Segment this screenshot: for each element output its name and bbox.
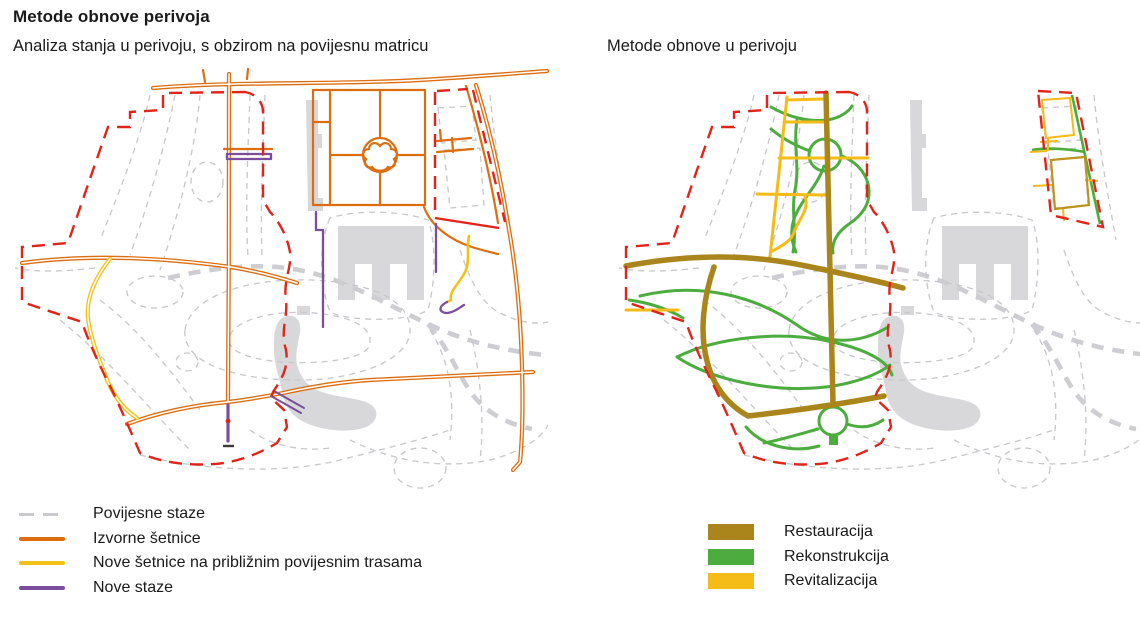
legend-item: Nove staze: [19, 576, 422, 601]
legend-swatch-new-walkways: [19, 561, 65, 565]
legend-swatch-reconstruction: [708, 549, 754, 565]
legend-item: Restauracija: [708, 520, 889, 545]
legend-swatch-new-paths: [19, 586, 65, 590]
legend-label: Povijesne staze: [93, 505, 205, 523]
legend-swatch-restoration: [708, 524, 754, 540]
legend-label: Izvorne šetnice: [93, 530, 201, 548]
legend-swatch-original-walkways: [19, 537, 65, 541]
legend-label: Rekonstrukcija: [784, 548, 889, 566]
legend-item: Povijesne staze: [19, 502, 422, 527]
legend-right: Restauracija Rekonstrukcija Revitalizaci…: [708, 520, 889, 594]
map-left-base: [15, 95, 548, 488]
legend-item: Revitalizacija: [708, 569, 889, 594]
legend-label: Restauracija: [784, 523, 873, 541]
legend-item: Nove šetnice na približnim povijesnim tr…: [19, 551, 422, 576]
legend-swatch-historic-paths: [19, 513, 65, 517]
legend-left: Povijesne staze Izvorne šetnice Nove šet…: [19, 502, 422, 600]
legend-item: Izvorne šetnice: [19, 527, 422, 552]
map-left-boundary: [22, 89, 505, 465]
map-right-reconstruction: [629, 95, 1100, 449]
legend-label: Revitalizacija: [784, 572, 877, 590]
legend-label: Nove staze: [93, 579, 173, 597]
legend-label: Nove šetnice na približnim povijesnim tr…: [93, 554, 422, 572]
legend-item: Rekonstrukcija: [708, 545, 889, 570]
legend-swatch-revitalization: [708, 573, 754, 589]
